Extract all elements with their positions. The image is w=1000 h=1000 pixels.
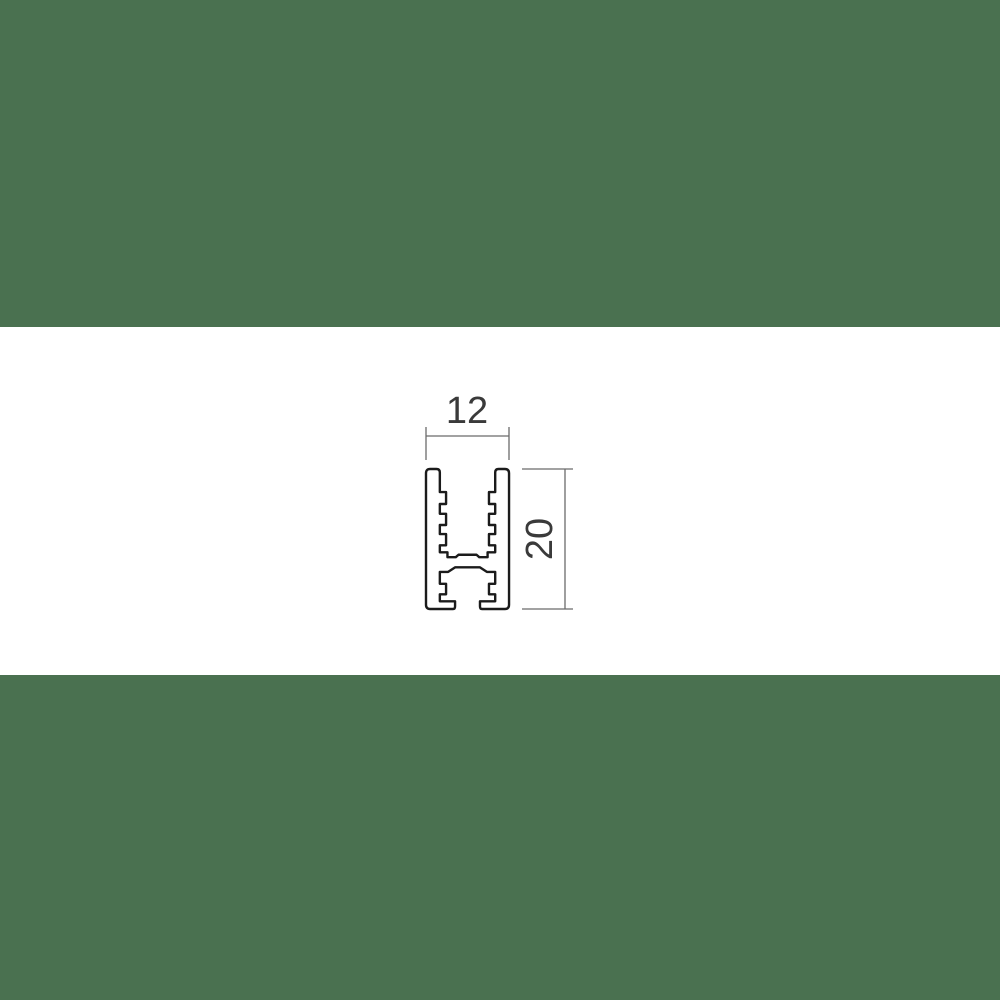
dimension-height: 20 bbox=[519, 469, 573, 609]
drawing-area: 12 20 bbox=[0, 327, 1000, 675]
profile-outline bbox=[426, 469, 509, 609]
dimension-width: 12 bbox=[426, 390, 509, 460]
dimension-width-label: 12 bbox=[446, 390, 488, 432]
profile-cross-section bbox=[426, 469, 509, 609]
top-green-band bbox=[0, 0, 1000, 327]
technical-drawing: 12 20 bbox=[400, 385, 600, 625]
dimension-height-label: 20 bbox=[519, 518, 561, 560]
bottom-green-band bbox=[0, 675, 1000, 1000]
